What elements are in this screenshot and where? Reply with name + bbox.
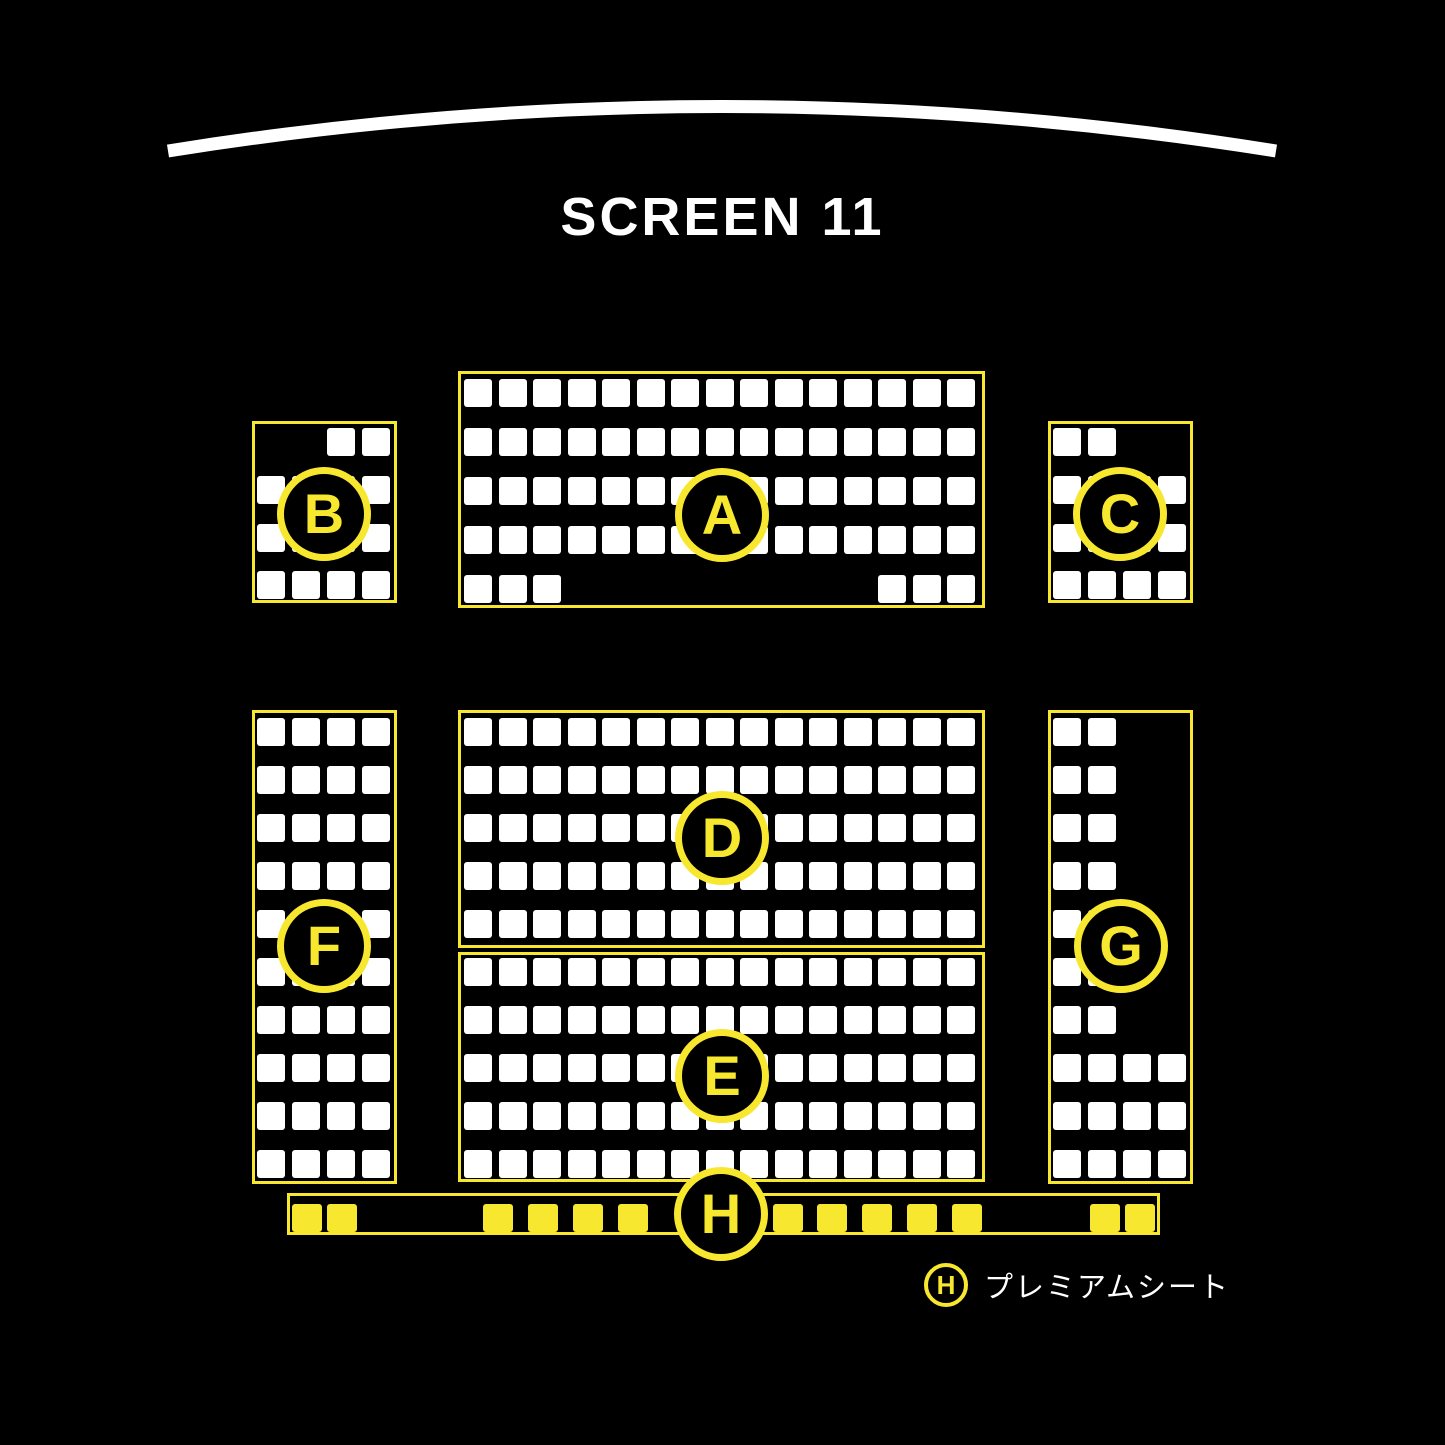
seat-f[interactable]: [292, 1102, 320, 1130]
seat-a[interactable]: [844, 477, 872, 505]
section-g-label: G: [1099, 918, 1143, 974]
seat-e[interactable]: [947, 1150, 975, 1178]
seat-e[interactable]: [913, 1006, 941, 1034]
seat-b[interactable]: [362, 428, 390, 456]
seat-d[interactable]: [464, 910, 492, 938]
seat-d[interactable]: [878, 862, 906, 890]
seat-d[interactable]: [602, 910, 630, 938]
seat-g[interactable]: [1088, 814, 1116, 842]
seat-h[interactable]: [618, 1204, 648, 1232]
seat-d[interactable]: [740, 910, 768, 938]
seat-e[interactable]: [568, 1102, 596, 1130]
seat-f[interactable]: [292, 1054, 320, 1082]
seat-d[interactable]: [878, 814, 906, 842]
seat-e[interactable]: [499, 1150, 527, 1178]
seat-a[interactable]: [740, 379, 768, 407]
seat-f[interactable]: [327, 766, 355, 794]
seat-h[interactable]: [483, 1204, 513, 1232]
seat-d[interactable]: [637, 814, 665, 842]
seat-d[interactable]: [533, 718, 561, 746]
seat-d[interactable]: [844, 814, 872, 842]
seat-g[interactable]: [1158, 1054, 1186, 1082]
seat-b[interactable]: [257, 571, 285, 599]
seat-d[interactable]: [706, 766, 734, 794]
seat-a[interactable]: [878, 379, 906, 407]
screen-arc-path: [168, 107, 1276, 152]
theater-seating-chart: SCREEN 11 ABCDEFGH H プレミアムシート: [0, 0, 1445, 1445]
seat-f[interactable]: [362, 1102, 390, 1130]
seat-f[interactable]: [292, 862, 320, 890]
seat-f[interactable]: [292, 766, 320, 794]
legend-premium-symbol: H: [937, 1272, 956, 1298]
seat-f[interactable]: [257, 1006, 285, 1034]
seat-e[interactable]: [671, 1006, 699, 1034]
seat-e[interactable]: [637, 1150, 665, 1178]
seat-e[interactable]: [568, 1150, 596, 1178]
seat-h[interactable]: [862, 1204, 892, 1232]
seat-d[interactable]: [637, 766, 665, 794]
seat-a[interactable]: [568, 526, 596, 554]
section-h-label: H: [701, 1186, 741, 1242]
seat-c[interactable]: [1053, 571, 1081, 599]
seat-a[interactable]: [913, 477, 941, 505]
seat-d[interactable]: [602, 814, 630, 842]
seat-g[interactable]: [1053, 1102, 1081, 1130]
seat-d[interactable]: [913, 862, 941, 890]
seat-f[interactable]: [327, 718, 355, 746]
seat-g[interactable]: [1053, 1006, 1081, 1034]
seat-e[interactable]: [602, 1150, 630, 1178]
seat-a[interactable]: [637, 379, 665, 407]
seat-h[interactable]: [817, 1204, 847, 1232]
seat-g[interactable]: [1088, 1102, 1116, 1130]
seat-a[interactable]: [809, 477, 837, 505]
seat-e[interactable]: [809, 1006, 837, 1034]
seat-f[interactable]: [327, 814, 355, 842]
seat-d[interactable]: [775, 862, 803, 890]
seat-e[interactable]: [671, 958, 699, 986]
seat-d[interactable]: [947, 766, 975, 794]
section-f-badge: F: [277, 899, 371, 993]
seat-g[interactable]: [1053, 1054, 1081, 1082]
seat-a[interactable]: [568, 379, 596, 407]
seat-e[interactable]: [499, 958, 527, 986]
seat-e[interactable]: [568, 1054, 596, 1082]
seat-d[interactable]: [913, 814, 941, 842]
seat-e[interactable]: [533, 1150, 561, 1178]
seat-d[interactable]: [568, 766, 596, 794]
seat-f[interactable]: [292, 1006, 320, 1034]
seat-a[interactable]: [947, 575, 975, 603]
seat-f[interactable]: [362, 1006, 390, 1034]
seat-d[interactable]: [671, 766, 699, 794]
seat-a[interactable]: [533, 575, 561, 603]
seat-a[interactable]: [844, 526, 872, 554]
seat-h[interactable]: [573, 1204, 603, 1232]
seat-e[interactable]: [947, 958, 975, 986]
seat-a[interactable]: [464, 526, 492, 554]
seat-a[interactable]: [533, 526, 561, 554]
seat-a[interactable]: [878, 575, 906, 603]
seat-e[interactable]: [637, 1006, 665, 1034]
seat-d[interactable]: [533, 862, 561, 890]
seat-h[interactable]: [773, 1204, 803, 1232]
seat-c[interactable]: [1088, 428, 1116, 456]
seat-g[interactable]: [1088, 862, 1116, 890]
seat-e[interactable]: [740, 958, 768, 986]
seat-f[interactable]: [327, 1054, 355, 1082]
seat-e[interactable]: [947, 1102, 975, 1130]
seat-c[interactable]: [1158, 571, 1186, 599]
seat-d[interactable]: [671, 910, 699, 938]
seat-e[interactable]: [878, 958, 906, 986]
seat-e[interactable]: [947, 1006, 975, 1034]
seat-d[interactable]: [706, 718, 734, 746]
seat-g[interactable]: [1053, 862, 1081, 890]
section-a-label: A: [702, 487, 742, 543]
seat-d[interactable]: [568, 814, 596, 842]
seat-e[interactable]: [775, 1102, 803, 1130]
seat-e[interactable]: [878, 1102, 906, 1130]
seat-d[interactable]: [809, 910, 837, 938]
seat-a[interactable]: [533, 379, 561, 407]
seat-h[interactable]: [327, 1204, 357, 1232]
legend-premium-label: プレミアムシート: [984, 1264, 1230, 1306]
seat-a[interactable]: [464, 575, 492, 603]
seat-g[interactable]: [1123, 1150, 1151, 1178]
section-c-label: C: [1100, 486, 1140, 542]
seat-a[interactable]: [913, 575, 941, 603]
seat-e[interactable]: [602, 1102, 630, 1130]
seat-a[interactable]: [775, 379, 803, 407]
seat-e[interactable]: [602, 958, 630, 986]
seat-f[interactable]: [292, 814, 320, 842]
seat-e[interactable]: [499, 1054, 527, 1082]
section-b-badge: B: [277, 467, 371, 561]
seat-e[interactable]: [533, 958, 561, 986]
seat-g[interactable]: [1088, 1006, 1116, 1034]
seat-f[interactable]: [257, 862, 285, 890]
seat-f[interactable]: [362, 814, 390, 842]
seat-a[interactable]: [568, 428, 596, 456]
seat-b[interactable]: [362, 571, 390, 599]
seat-e[interactable]: [464, 958, 492, 986]
seat-f[interactable]: [362, 1150, 390, 1178]
seat-d[interactable]: [878, 766, 906, 794]
seat-d[interactable]: [637, 910, 665, 938]
seat-a[interactable]: [844, 379, 872, 407]
seat-e[interactable]: [533, 1006, 561, 1034]
seat-e[interactable]: [637, 958, 665, 986]
seat-a[interactable]: [947, 428, 975, 456]
seat-g[interactable]: [1123, 1102, 1151, 1130]
seat-e[interactable]: [913, 1150, 941, 1178]
seat-d[interactable]: [568, 910, 596, 938]
seat-a[interactable]: [844, 428, 872, 456]
seat-d[interactable]: [464, 718, 492, 746]
seat-d[interactable]: [913, 766, 941, 794]
seat-e[interactable]: [533, 1054, 561, 1082]
seat-a[interactable]: [602, 428, 630, 456]
seat-a[interactable]: [499, 477, 527, 505]
seat-e[interactable]: [775, 1150, 803, 1178]
seat-a[interactable]: [740, 428, 768, 456]
seat-e[interactable]: [775, 958, 803, 986]
seat-e[interactable]: [706, 958, 734, 986]
seat-c[interactable]: [1123, 571, 1151, 599]
section-g-badge: G: [1074, 899, 1168, 993]
seat-a[interactable]: [464, 379, 492, 407]
seat-e[interactable]: [913, 1102, 941, 1130]
legend-premium: H プレミアムシート: [924, 1263, 1230, 1307]
seat-a[interactable]: [775, 428, 803, 456]
seat-e[interactable]: [568, 1006, 596, 1034]
seat-d[interactable]: [878, 910, 906, 938]
seat-d[interactable]: [464, 862, 492, 890]
section-d-label: D: [702, 810, 742, 866]
seat-d[interactable]: [947, 814, 975, 842]
seat-e[interactable]: [637, 1102, 665, 1130]
seat-e[interactable]: [844, 1006, 872, 1034]
seat-f[interactable]: [257, 1054, 285, 1082]
seat-e[interactable]: [947, 1054, 975, 1082]
seat-d[interactable]: [568, 718, 596, 746]
seat-a[interactable]: [913, 379, 941, 407]
seat-f[interactable]: [257, 766, 285, 794]
seat-f[interactable]: [327, 862, 355, 890]
seat-e[interactable]: [464, 1006, 492, 1034]
seat-d[interactable]: [568, 862, 596, 890]
seat-a[interactable]: [913, 526, 941, 554]
seat-f[interactable]: [362, 1054, 390, 1082]
seat-d[interactable]: [809, 718, 837, 746]
seat-a[interactable]: [533, 428, 561, 456]
seat-e[interactable]: [464, 1102, 492, 1130]
seat-a[interactable]: [602, 526, 630, 554]
seat-a[interactable]: [464, 428, 492, 456]
seat-d[interactable]: [499, 718, 527, 746]
seat-d[interactable]: [602, 766, 630, 794]
seat-g[interactable]: [1088, 1150, 1116, 1178]
seat-a[interactable]: [499, 575, 527, 603]
seat-a[interactable]: [637, 526, 665, 554]
seat-a[interactable]: [775, 477, 803, 505]
seat-h[interactable]: [528, 1204, 558, 1232]
seat-g[interactable]: [1053, 766, 1081, 794]
section-h-badge: H: [674, 1167, 768, 1261]
seat-g[interactable]: [1158, 1150, 1186, 1178]
seat-a[interactable]: [499, 428, 527, 456]
seat-a[interactable]: [947, 379, 975, 407]
seat-d[interactable]: [464, 814, 492, 842]
seat-d[interactable]: [878, 718, 906, 746]
seat-d[interactable]: [844, 862, 872, 890]
seat-d[interactable]: [947, 718, 975, 746]
seat-d[interactable]: [499, 814, 527, 842]
section-a-badge: A: [675, 468, 769, 562]
seat-f[interactable]: [327, 1102, 355, 1130]
seat-a[interactable]: [637, 428, 665, 456]
seat-f[interactable]: [257, 1150, 285, 1178]
seat-g[interactable]: [1053, 718, 1081, 746]
legend-premium-badge: H: [924, 1263, 968, 1307]
seat-e[interactable]: [602, 1006, 630, 1034]
seat-e[interactable]: [844, 958, 872, 986]
seat-d[interactable]: [706, 910, 734, 938]
seat-a[interactable]: [878, 428, 906, 456]
seat-e[interactable]: [913, 958, 941, 986]
seat-d[interactable]: [913, 718, 941, 746]
seat-d[interactable]: [637, 862, 665, 890]
seat-e[interactable]: [740, 1006, 768, 1034]
seat-g[interactable]: [1123, 1054, 1151, 1082]
seat-a[interactable]: [878, 477, 906, 505]
seat-d[interactable]: [602, 718, 630, 746]
seat-a[interactable]: [499, 379, 527, 407]
seat-d[interactable]: [809, 814, 837, 842]
seat-h[interactable]: [1090, 1204, 1120, 1232]
seat-e[interactable]: [464, 1150, 492, 1178]
seat-d[interactable]: [775, 766, 803, 794]
seat-d[interactable]: [671, 718, 699, 746]
seat-a[interactable]: [671, 428, 699, 456]
seat-c[interactable]: [1053, 428, 1081, 456]
seat-a[interactable]: [913, 428, 941, 456]
seat-g[interactable]: [1088, 718, 1116, 746]
seat-e[interactable]: [878, 1150, 906, 1178]
seat-e[interactable]: [844, 1150, 872, 1178]
seat-a[interactable]: [878, 526, 906, 554]
seat-g[interactable]: [1088, 766, 1116, 794]
seat-e[interactable]: [499, 1102, 527, 1130]
seat-e[interactable]: [844, 1054, 872, 1082]
seat-a[interactable]: [464, 477, 492, 505]
seat-b[interactable]: [327, 571, 355, 599]
seat-d[interactable]: [533, 814, 561, 842]
seat-d[interactable]: [913, 910, 941, 938]
seat-d[interactable]: [740, 766, 768, 794]
seat-e[interactable]: [809, 1150, 837, 1178]
seat-d[interactable]: [844, 766, 872, 794]
seat-a[interactable]: [499, 526, 527, 554]
seat-d[interactable]: [533, 766, 561, 794]
section-d-badge: D: [675, 791, 769, 885]
seat-e[interactable]: [809, 1102, 837, 1130]
seat-a[interactable]: [706, 428, 734, 456]
section-f-label: F: [307, 918, 341, 974]
seat-e[interactable]: [637, 1054, 665, 1082]
seat-d[interactable]: [740, 718, 768, 746]
seat-d[interactable]: [499, 766, 527, 794]
seat-g[interactable]: [1053, 814, 1081, 842]
seat-c[interactable]: [1088, 571, 1116, 599]
seat-e[interactable]: [844, 1102, 872, 1130]
seat-a[interactable]: [947, 477, 975, 505]
seat-e[interactable]: [809, 958, 837, 986]
seat-g[interactable]: [1158, 1102, 1186, 1130]
seat-f[interactable]: [292, 718, 320, 746]
seat-d[interactable]: [464, 766, 492, 794]
seat-e[interactable]: [775, 1054, 803, 1082]
seat-f[interactable]: [257, 718, 285, 746]
seat-f[interactable]: [362, 862, 390, 890]
seat-a[interactable]: [568, 477, 596, 505]
seat-a[interactable]: [775, 526, 803, 554]
seat-a[interactable]: [809, 379, 837, 407]
seat-f[interactable]: [292, 1150, 320, 1178]
section-c-badge: C: [1073, 467, 1167, 561]
seat-a[interactable]: [637, 477, 665, 505]
seat-e[interactable]: [878, 1054, 906, 1082]
seat-d[interactable]: [637, 718, 665, 746]
seat-b[interactable]: [327, 428, 355, 456]
seat-e[interactable]: [533, 1102, 561, 1130]
seat-a[interactable]: [533, 477, 561, 505]
seat-e[interactable]: [775, 1006, 803, 1034]
seat-g[interactable]: [1053, 1150, 1081, 1178]
seat-e[interactable]: [809, 1054, 837, 1082]
seat-e[interactable]: [464, 1054, 492, 1082]
seat-d[interactable]: [844, 910, 872, 938]
seat-g[interactable]: [1088, 1054, 1116, 1082]
seat-f[interactable]: [257, 1102, 285, 1130]
seat-a[interactable]: [671, 379, 699, 407]
seat-d[interactable]: [775, 718, 803, 746]
seat-a[interactable]: [809, 428, 837, 456]
seat-d[interactable]: [947, 862, 975, 890]
seat-f[interactable]: [362, 718, 390, 746]
screen-title: SCREEN 11: [0, 186, 1445, 248]
section-e-label: E: [703, 1048, 740, 1104]
seat-a[interactable]: [602, 477, 630, 505]
seat-f[interactable]: [327, 1006, 355, 1034]
seat-e[interactable]: [913, 1054, 941, 1082]
seat-d[interactable]: [844, 718, 872, 746]
seat-h[interactable]: [907, 1204, 937, 1232]
seat-d[interactable]: [809, 862, 837, 890]
seat-d[interactable]: [602, 862, 630, 890]
seat-e[interactable]: [568, 958, 596, 986]
seat-d[interactable]: [499, 862, 527, 890]
seat-e[interactable]: [499, 1006, 527, 1034]
seat-h[interactable]: [1125, 1204, 1155, 1232]
seat-d[interactable]: [775, 910, 803, 938]
seat-e[interactable]: [602, 1054, 630, 1082]
seat-d[interactable]: [533, 910, 561, 938]
seat-d[interactable]: [499, 910, 527, 938]
seat-d[interactable]: [775, 814, 803, 842]
seat-a[interactable]: [706, 379, 734, 407]
seat-f[interactable]: [257, 814, 285, 842]
seat-d[interactable]: [809, 766, 837, 794]
seat-b[interactable]: [292, 571, 320, 599]
seat-f[interactable]: [327, 1150, 355, 1178]
seat-a[interactable]: [809, 526, 837, 554]
seat-d[interactable]: [947, 910, 975, 938]
seat-h[interactable]: [952, 1204, 982, 1232]
section-e-badge: E: [675, 1029, 769, 1123]
seat-e[interactable]: [878, 1006, 906, 1034]
seat-h[interactable]: [292, 1204, 322, 1232]
section-b-label: B: [304, 486, 344, 542]
seat-a[interactable]: [602, 379, 630, 407]
seat-a[interactable]: [947, 526, 975, 554]
seat-f[interactable]: [362, 766, 390, 794]
